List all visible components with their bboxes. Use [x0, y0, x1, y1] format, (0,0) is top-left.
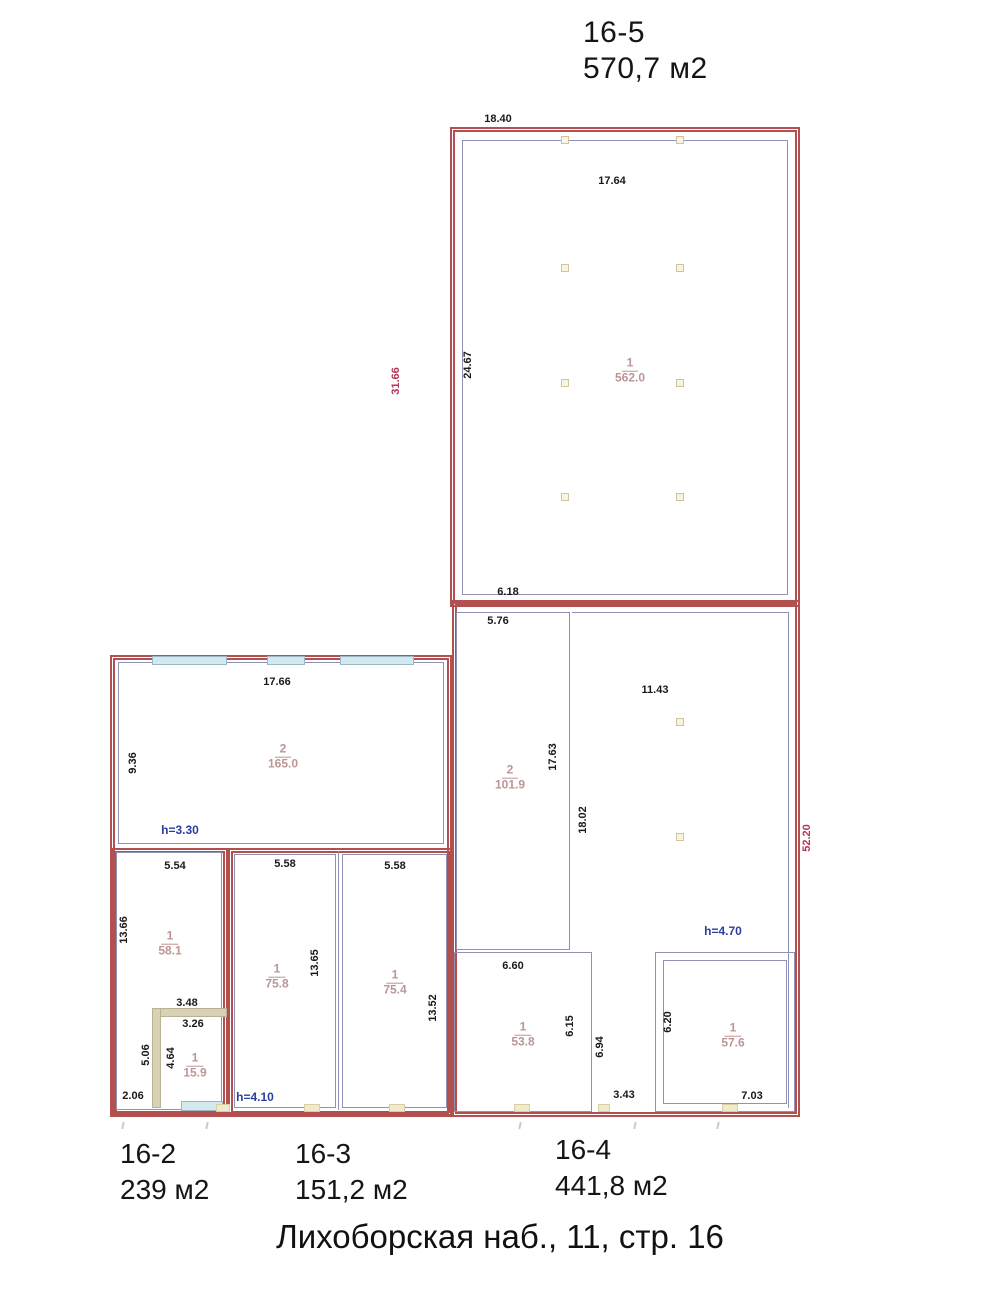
- room-label-53: 1 53.8: [511, 1021, 534, 1050]
- room-area: 58.1: [158, 945, 181, 959]
- dim-corridor-v: 18.02: [577, 806, 589, 834]
- dim-r58-bottom: 2.06: [122, 1090, 143, 1102]
- axis-tick: [716, 1122, 719, 1129]
- room-area: 57.6: [721, 1037, 744, 1051]
- room-label-165: 2 165.0: [268, 743, 298, 772]
- unit-16-3-area: 151,2 м2: [295, 1174, 408, 1206]
- column-marker: [561, 136, 569, 144]
- dim-r75a-top: 5.58: [274, 858, 295, 870]
- address-title: Лихоборская наб., 11, стр. 16: [0, 1218, 1000, 1256]
- room-label-75a: 1 75.8: [265, 963, 288, 992]
- dim-top-width: 18.40: [484, 113, 512, 125]
- axis-tick: [121, 1122, 124, 1129]
- wall-room-15-top: [152, 1008, 227, 1017]
- dim-r75b-right: 13.52: [427, 994, 439, 1022]
- room-label-58: 1 58.1: [158, 930, 181, 959]
- dim-r53-right: 6.15: [564, 1015, 576, 1036]
- unit-16-4-area: 441,8 м2: [555, 1170, 668, 1202]
- column-marker: [561, 493, 569, 501]
- axis-tick: [518, 1122, 521, 1129]
- dim-right-outer: 52.20: [801, 824, 813, 852]
- room-area: 165.0: [268, 758, 298, 772]
- dim-big-bottom: 6.18: [497, 586, 518, 598]
- dim-hall-width: 11.43: [642, 684, 669, 696]
- dim-r15-left2: 4.64: [165, 1047, 177, 1068]
- room-label-75b: 1 75.4: [383, 969, 406, 998]
- dim-r53-top: 6.60: [502, 960, 523, 972]
- column-marker: [676, 718, 684, 726]
- floor-plan: 16-5 570,7 м2 18.40 17.64 24: [0, 0, 1000, 1289]
- axis-tick: [205, 1122, 208, 1129]
- room-area: 75.8: [265, 978, 288, 992]
- room-number: 1: [515, 1021, 532, 1036]
- room-label-big: 1 562.0: [615, 357, 645, 386]
- unit-16-5-number: 16-5: [583, 16, 645, 50]
- dim-r101-right: 17.63: [547, 743, 559, 771]
- dim-inner-top: 17.64: [598, 175, 626, 187]
- wall-divider-16-3: [338, 851, 339, 1110]
- room-label-101: 2 101.9: [495, 764, 525, 793]
- dim-r165-top: 17.66: [263, 676, 291, 688]
- door-mark-6: [722, 1104, 738, 1112]
- door-mark-5: [598, 1104, 610, 1112]
- window-1: [152, 656, 227, 665]
- dim-r15-top: 3.48: [176, 997, 197, 1009]
- room-number: 1: [187, 1052, 204, 1067]
- room-area: 101.9: [495, 779, 525, 793]
- dim-r165-left: 9.36: [127, 752, 139, 773]
- room-number: 1: [162, 930, 179, 945]
- column-marker: [561, 379, 569, 387]
- room-area: 15.9: [183, 1067, 206, 1081]
- dim-bottom-corr: 3.43: [613, 1089, 634, 1101]
- door-mark-2: [304, 1104, 320, 1112]
- unit-16-2-number: 16-2: [120, 1138, 176, 1170]
- height-room-75: h=4.10: [236, 1090, 274, 1104]
- dim-r15-top2: 3.26: [182, 1018, 203, 1030]
- column-marker: [676, 493, 684, 501]
- room-number: 1: [269, 963, 286, 978]
- unit-16-4-number: 16-4: [555, 1134, 611, 1166]
- door-mark-4: [514, 1104, 530, 1112]
- unit-16-5-area: 570,7 м2: [583, 52, 708, 86]
- unit-16-2-area: 239 м2: [120, 1174, 209, 1206]
- column-marker: [676, 136, 684, 144]
- room-number: 2: [275, 743, 292, 758]
- room-area: 75.4: [383, 984, 406, 998]
- dim-r75-mid: 13.65: [309, 949, 321, 977]
- room-label-15: 1 15.9: [183, 1052, 206, 1081]
- dim-r58-top: 5.54: [164, 860, 185, 872]
- dim-r15-left: 5.06: [140, 1044, 152, 1065]
- room-number: 1: [725, 1022, 742, 1037]
- room-area: 53.8: [511, 1036, 534, 1050]
- dim-r58-left: 13.66: [118, 916, 130, 944]
- column-marker: [561, 264, 569, 272]
- column-marker: [676, 379, 684, 387]
- window-3: [340, 656, 414, 665]
- room-number: 1: [387, 969, 404, 984]
- column-marker: [676, 264, 684, 272]
- room-area: 562.0: [615, 372, 645, 386]
- dim-r57-left: 6.20: [662, 1011, 674, 1032]
- door-mark-3: [389, 1104, 405, 1112]
- dim-r57-bottom: 7.03: [741, 1090, 762, 1102]
- window-2: [267, 656, 305, 665]
- dim-r101-top: 5.76: [487, 615, 508, 627]
- inner-line-hall-top: [572, 612, 789, 613]
- room-number: 2: [502, 764, 519, 779]
- door-mark-1: [216, 1104, 230, 1112]
- height-hall: h=4.70: [704, 924, 742, 938]
- axis-tick: [633, 1122, 636, 1129]
- dim-big-left-inner: 24.67: [462, 351, 474, 379]
- dim-corridor2-v: 6.94: [594, 1036, 606, 1057]
- dim-r75b-top: 5.58: [384, 860, 405, 872]
- room-number: 1: [622, 357, 639, 372]
- dim-big-left-outer: 31.66: [390, 367, 402, 395]
- column-marker: [676, 833, 684, 841]
- room-label-57: 1 57.6: [721, 1022, 744, 1051]
- wall-room-15-left: [152, 1008, 161, 1108]
- unit-16-3-number: 16-3: [295, 1138, 351, 1170]
- height-room-165: h=3.30: [161, 823, 199, 837]
